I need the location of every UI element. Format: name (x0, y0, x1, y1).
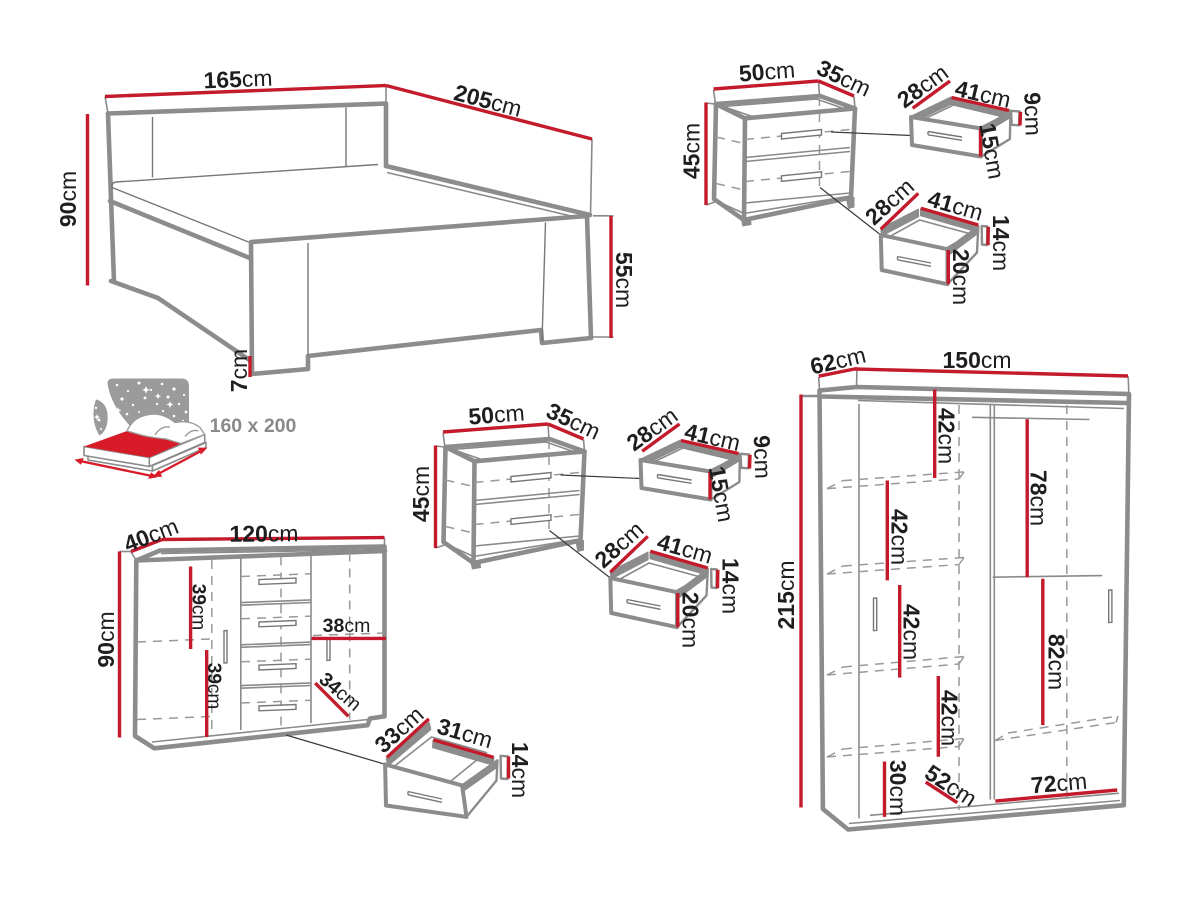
svg-text:78cm: 78cm (1026, 470, 1052, 526)
svg-text:90cm: 90cm (93, 611, 119, 667)
svg-text:42cm: 42cm (887, 509, 913, 565)
svg-text:7cm: 7cm (226, 349, 252, 392)
svg-text:165cm: 165cm (203, 65, 273, 94)
svg-text:9cm: 9cm (1019, 92, 1047, 136)
svg-text:160 x 200: 160 x 200 (210, 415, 297, 437)
svg-text:42cm: 42cm (937, 690, 963, 746)
svg-text:45cm: 45cm (679, 123, 705, 179)
svg-text:50cm: 50cm (738, 56, 796, 86)
svg-text:90cm: 90cm (55, 171, 81, 227)
svg-text:14cm: 14cm (507, 742, 533, 798)
svg-text:120cm: 120cm (229, 520, 298, 547)
svg-text:20cm: 20cm (948, 249, 974, 305)
svg-text:82cm: 82cm (1044, 634, 1070, 690)
svg-text:39cm: 39cm (204, 663, 225, 709)
svg-text:39cm: 39cm (188, 584, 209, 630)
svg-text:55cm: 55cm (611, 252, 637, 308)
svg-text:150cm: 150cm (942, 347, 1011, 373)
svg-text:215cm: 215cm (773, 560, 799, 629)
svg-text:72cm: 72cm (1030, 768, 1088, 799)
svg-text:14cm: 14cm (988, 215, 1014, 271)
svg-text:38cm: 38cm (323, 615, 371, 637)
svg-text:30cm: 30cm (885, 760, 911, 816)
svg-text:42cm: 42cm (899, 604, 925, 660)
svg-text:42cm: 42cm (934, 408, 960, 464)
